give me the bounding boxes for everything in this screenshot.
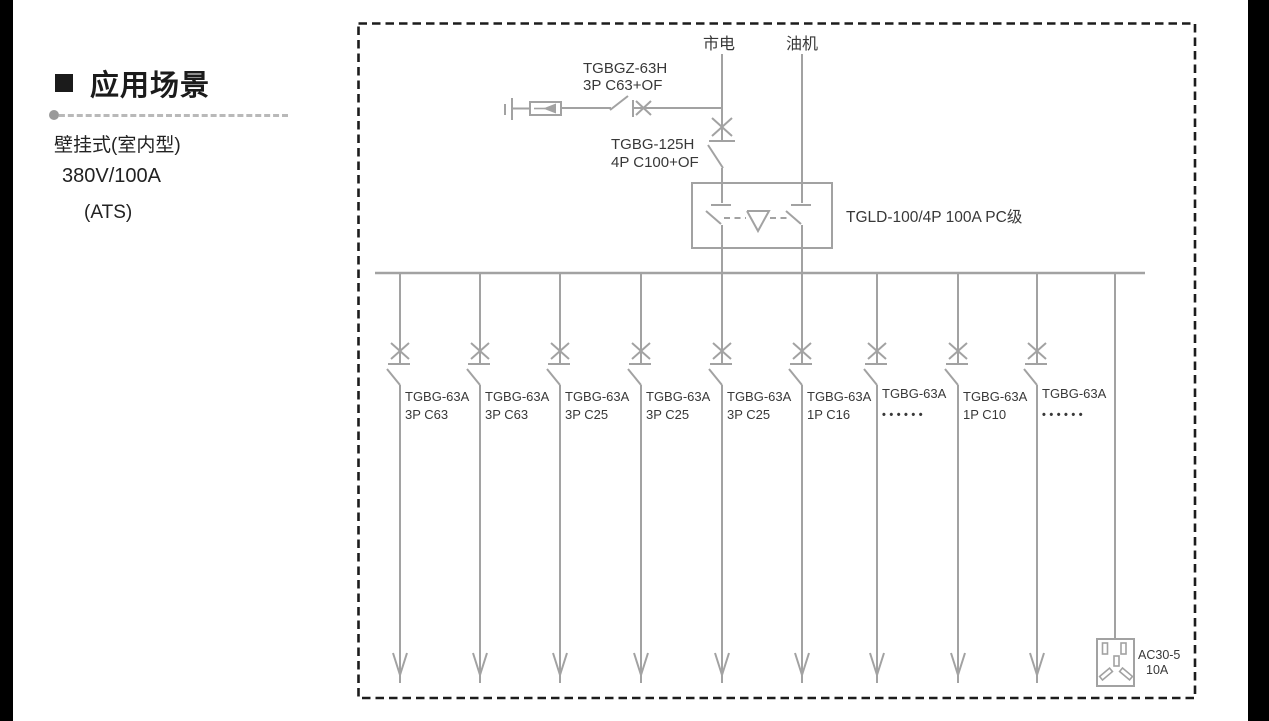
feeder-spec: 3P C63 [485,407,528,422]
main-breaker-model: TGBG-125H [611,136,694,153]
feeder-spec: •••••• [1042,409,1086,421]
breaker-blade [1024,369,1037,385]
diagram-dashed-border [359,24,1196,699]
mains-incoming-line [708,54,735,203]
page: 应用场景 壁挂式(室内型) 380V/100A (ATS) 市电 油机 TGBG… [0,0,1269,721]
feeder-model: TGBG-63A [1042,386,1107,401]
breaker-blade [387,369,400,385]
ats-switch [692,183,832,273]
ats-interlock-triangle-icon [747,211,769,231]
feeder-model: TGBG-63A [565,389,630,404]
spd-breaker-model: TGBGZ-63H [583,60,667,77]
feeder-branch-9: TGBG-63A •••••• [1024,273,1107,683]
feeder-branch-2: TGBG-63A 3P C63 [467,273,550,683]
socket-slot-icon [1103,643,1108,654]
spd-breaker-spec: 3P C63+OF [583,77,662,94]
ats-box [692,183,832,248]
socket-slot-icon [1114,656,1119,666]
spd-arrow-icon [543,104,556,114]
breaker-blade [945,369,958,385]
spd-branch [505,96,722,120]
feeder-model: TGBG-63A [405,389,470,404]
breaker-blade [547,369,560,385]
feeder-model: TGBG-63A [882,386,947,401]
feeder-branch-4: TGBG-63A 3P C25 [628,273,711,683]
breaker-blade [864,369,877,385]
feeder-spec: 3P C25 [727,407,770,422]
feeder-model: TGBG-63A [807,389,872,404]
generator-source-label: 油机 [786,35,818,53]
feeder-spec: •••••• [882,409,926,421]
feeder-spec: 1P C16 [807,407,850,422]
feeder-branch-5: TGBG-63A 3P C25 [709,273,792,683]
mains-source-label: 市电 [703,35,735,53]
socket-rating: 10A [1146,663,1169,677]
feeder-model: TGBG-63A [646,389,711,404]
ats-left-blade [706,211,721,224]
feeder-spec: 3P C25 [646,407,689,422]
feeder-branch-6: TGBG-63A 1P C16 [789,273,872,683]
socket-slot-icon [1120,668,1133,680]
ats-right-blade [786,211,801,224]
feeder-spec: 3P C25 [565,407,608,422]
feeder-spec: 1P C10 [963,407,1006,422]
feeder-spec: 3P C63 [405,407,448,422]
socket-slot-icon [1121,643,1126,654]
feeder-branch-7: TGBG-63A •••••• [864,273,947,683]
breaker-blade [709,369,722,385]
feeder-branch-3: TGBG-63A 3P C25 [547,273,630,683]
ats-label: TGLD-100/4P 100A PC级 [846,208,1022,226]
feeder-model: TGBG-63A [963,389,1028,404]
feeder-branch-1: TGBG-63A 3P C63 [387,273,470,683]
feeder-model: TGBG-63A [485,389,550,404]
breaker-blade [708,145,723,168]
socket-slot-icon [1100,668,1113,680]
feeder-branch-8: TGBG-63A 1P C10 [945,273,1028,683]
socket-model: AC30-5 [1138,648,1180,662]
breaker-blade [467,369,480,385]
feeder-model: TGBG-63A [727,389,792,404]
socket-branch: AC30-5 10A [1097,273,1180,686]
breaker-blade [789,369,802,385]
schematic-canvas: 市电 油机 TGBG-125H 4P C100+OF [0,0,1269,721]
main-breaker-spec: 4P C100+OF [611,154,699,171]
breaker-blade [628,369,641,385]
spd-switch-blade [610,96,628,110]
